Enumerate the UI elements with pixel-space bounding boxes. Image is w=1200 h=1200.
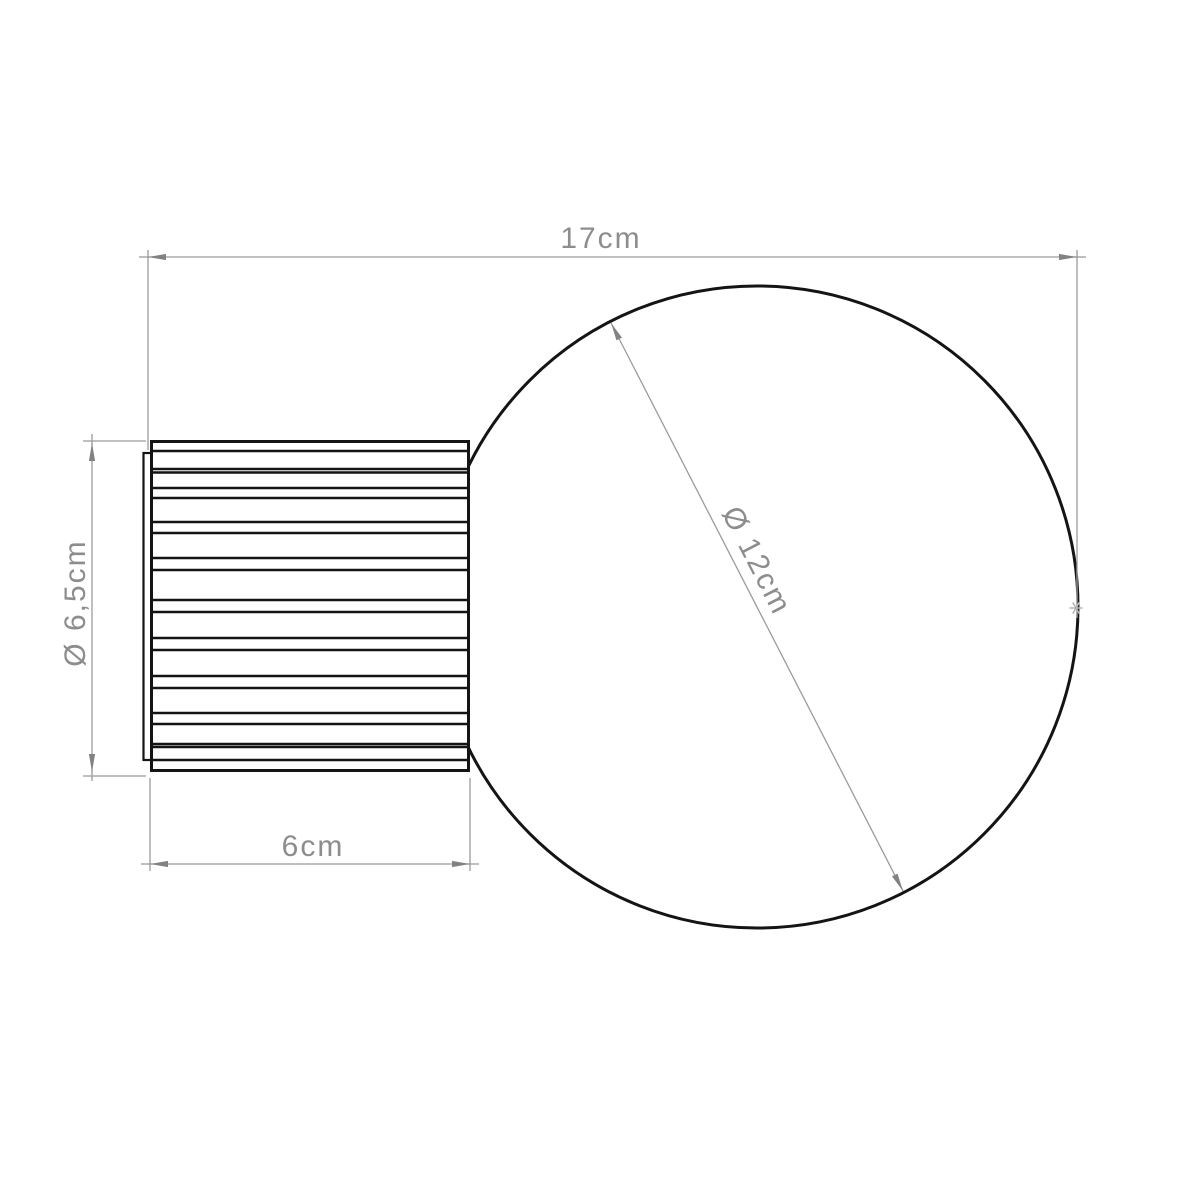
- dimension-base-diameter: Ø 6,5cm: [59, 434, 146, 781]
- technical-drawing-canvas: 17cm Ø 6,5cm 6cm Ø 12cm: [0, 0, 1200, 1200]
- base-cylinder-body: [152, 442, 469, 771]
- dimension-label-base-diameter: Ø 6,5cm: [59, 539, 92, 666]
- dimension-label-total-length: 17cm: [560, 222, 641, 255]
- dimension-label-base-length: 6cm: [282, 830, 345, 863]
- dimension-base-length: 6cm: [141, 778, 479, 871]
